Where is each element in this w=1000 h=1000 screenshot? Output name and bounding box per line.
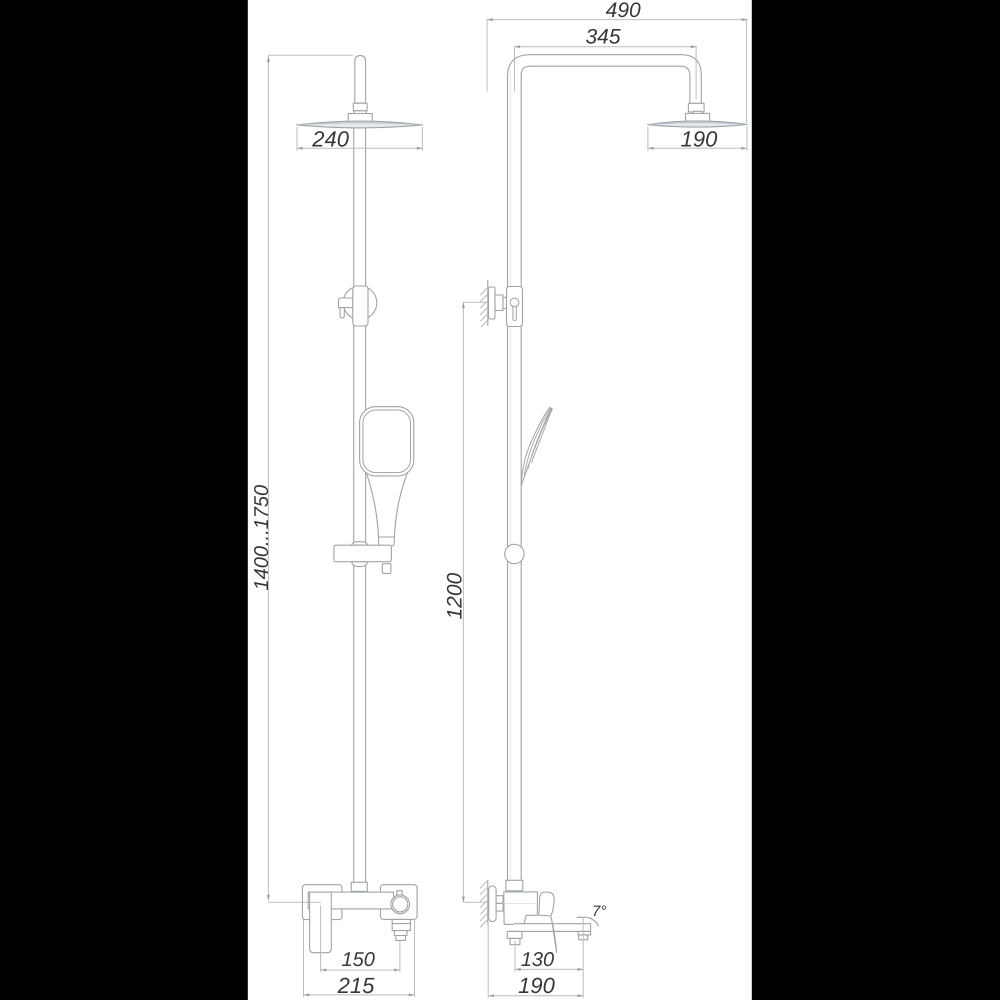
svg-text:215: 215 <box>337 973 375 998</box>
svg-text:190: 190 <box>681 126 718 151</box>
svg-text:7°: 7° <box>592 903 606 920</box>
svg-text:490: 490 <box>606 0 641 22</box>
svg-text:345: 345 <box>585 26 620 49</box>
svg-text:130: 130 <box>521 949 554 971</box>
svg-text:190: 190 <box>518 973 555 998</box>
svg-text:1400...1750: 1400...1750 <box>251 485 273 591</box>
svg-text:1200: 1200 <box>444 572 467 619</box>
svg-text:150: 150 <box>342 949 375 971</box>
svg-text:240: 240 <box>311 126 349 151</box>
